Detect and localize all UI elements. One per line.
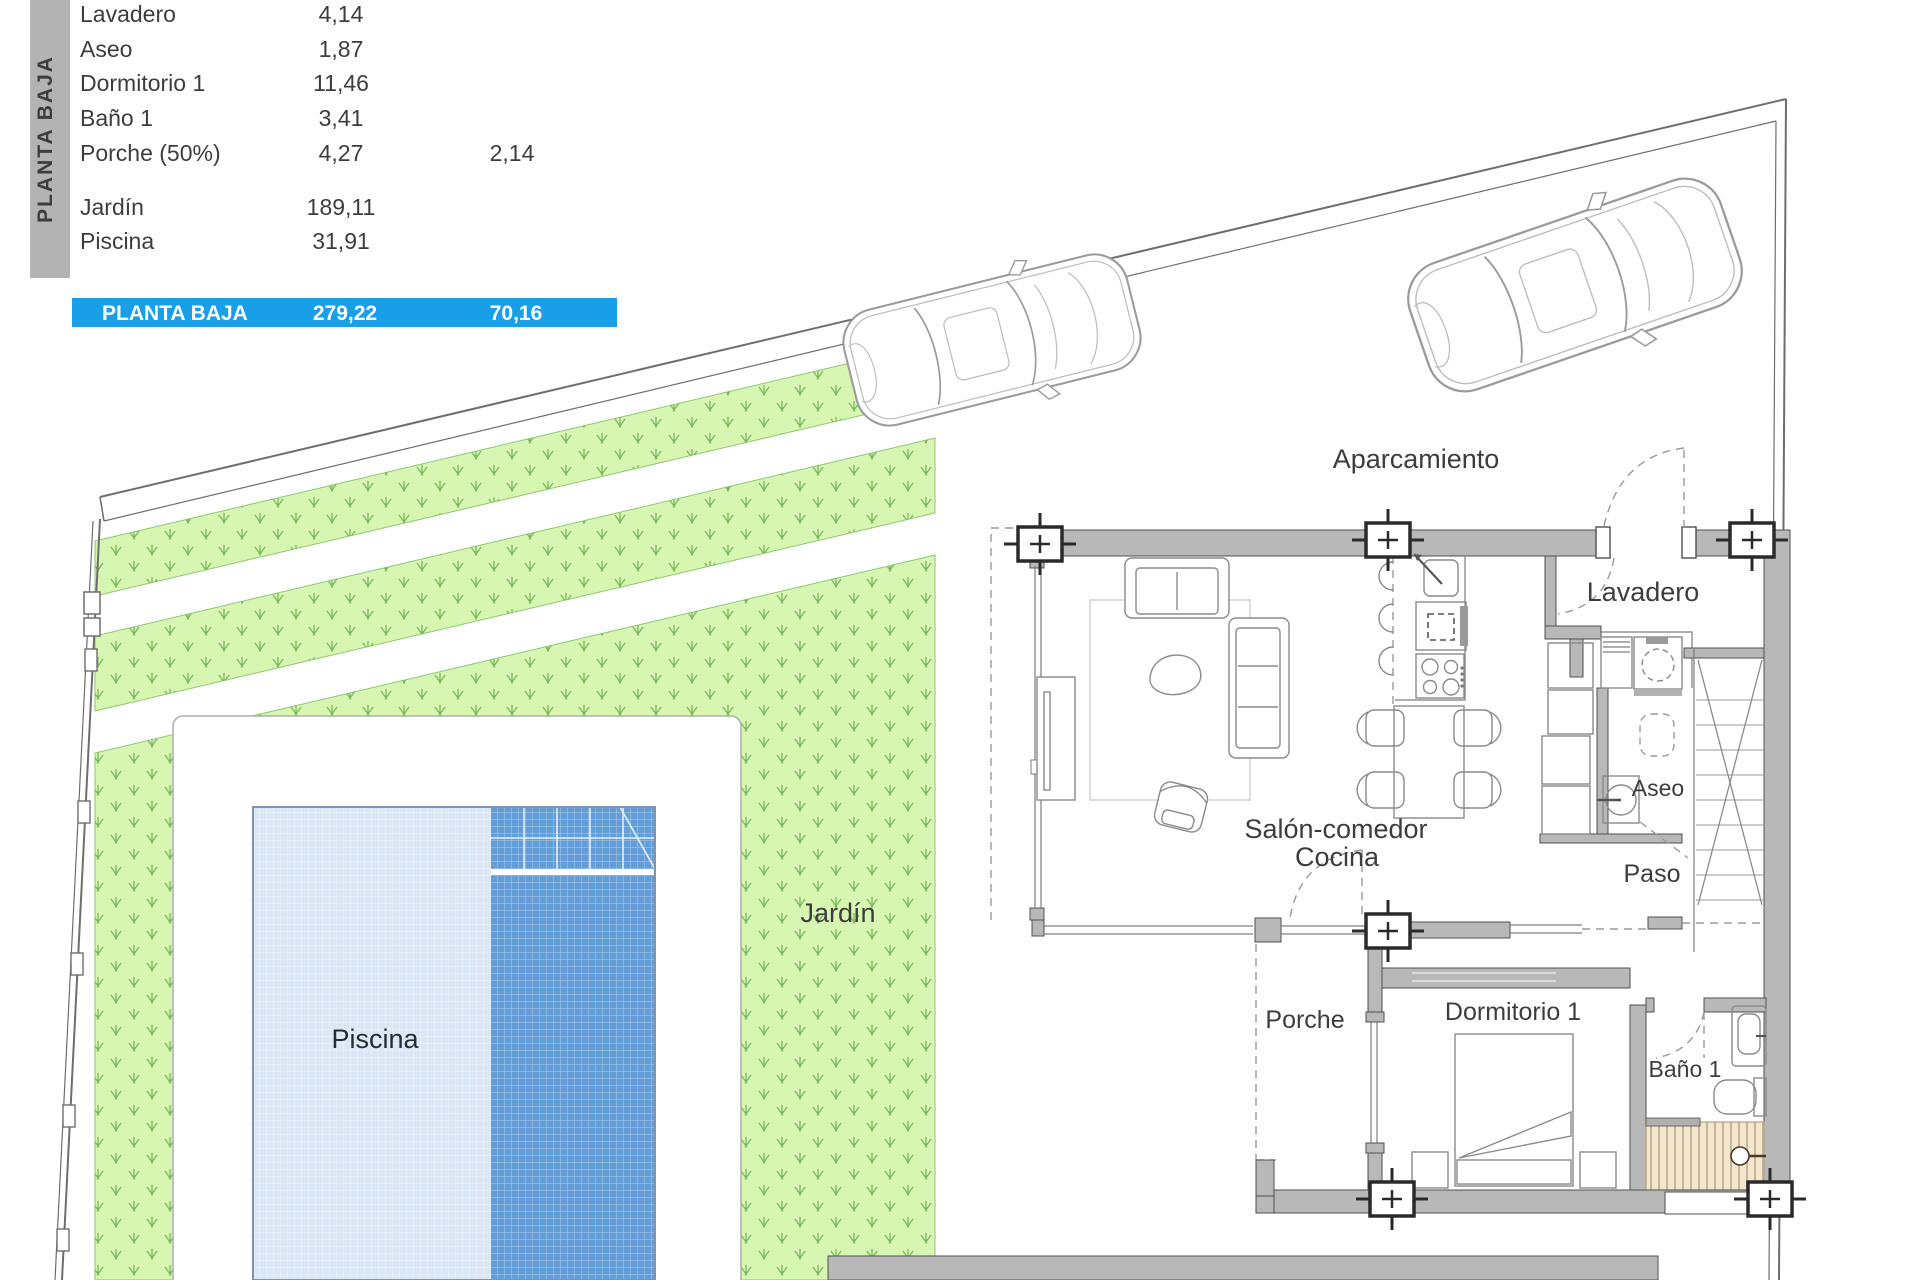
bottom-site-wall (828, 1256, 1658, 1280)
total-built-area: 279,22 (313, 302, 377, 325)
pool-area: Piscina (173, 716, 741, 1280)
lavadero-label: Lavadero (1587, 577, 1700, 607)
floorplan-canvas: Piscina Jardín Aparcamiento (0, 0, 1920, 1280)
total-label: PLANTA BAJA (102, 302, 248, 325)
table-row-name: Porche (50%) (80, 140, 221, 166)
tv-unit (1037, 677, 1075, 800)
porche-label: Porche (1265, 1006, 1344, 1034)
paso-label: Paso (1624, 860, 1681, 888)
table-row-name: Piscina (80, 228, 154, 254)
table-row-value: 11,46 (313, 70, 369, 96)
door-jamb (1596, 527, 1610, 558)
table-row-name: Aseo (80, 36, 132, 62)
shower-head-icon (1731, 1147, 1749, 1165)
floorplan-page: Piscina Jardín Aparcamiento (0, 0, 1920, 1280)
table-row-name: Dormitorio 1 (80, 70, 205, 96)
right-wall (1764, 530, 1790, 1215)
top-wall (1032, 530, 1608, 556)
sofa (1229, 618, 1289, 758)
table-row-name: Baño 1 (80, 105, 153, 131)
sofa (1125, 558, 1229, 618)
table-row-value: 31,91 (312, 228, 370, 254)
table-row-name: Lavadero (80, 1, 176, 27)
fence-post (78, 801, 90, 823)
porch-step (1665, 1192, 1747, 1214)
fence-post (85, 649, 97, 671)
floor-tag-label: PLANTA BAJA (34, 55, 57, 223)
total-banner: PLANTA BAJA 279,22 70,16 (72, 298, 617, 327)
pool-label: Piscina (331, 1024, 419, 1054)
dormitorio-label: Dormitorio 1 (1445, 998, 1581, 1026)
table-row-value: 4,14 (319, 1, 364, 27)
aseo-label: Aseo (1632, 775, 1684, 801)
fence-post (71, 953, 83, 975)
table-row-value: 1,87 (319, 36, 364, 62)
table-row-value: 189,11 (307, 194, 376, 220)
fence-post (57, 1229, 69, 1251)
fence-post (63, 1105, 75, 1127)
garden-label: Jardín (800, 898, 875, 928)
parking-label: Aparcamiento (1333, 444, 1500, 474)
cocina-label: Cocina (1295, 842, 1380, 872)
door-jamb (1682, 527, 1696, 558)
shower (1646, 1118, 1766, 1190)
table-row-value: 4,27 (319, 140, 364, 166)
bano-label: Baño 1 (1649, 1056, 1722, 1082)
table-row-name: Jardín (80, 194, 144, 220)
table-row-value2: 2,14 (490, 140, 535, 166)
table-row-value: 3,41 (319, 105, 364, 131)
salon-label: Salón-comedor (1244, 814, 1427, 844)
fence-gate-post (84, 592, 100, 614)
total-useful-area: 70,16 (490, 302, 543, 325)
